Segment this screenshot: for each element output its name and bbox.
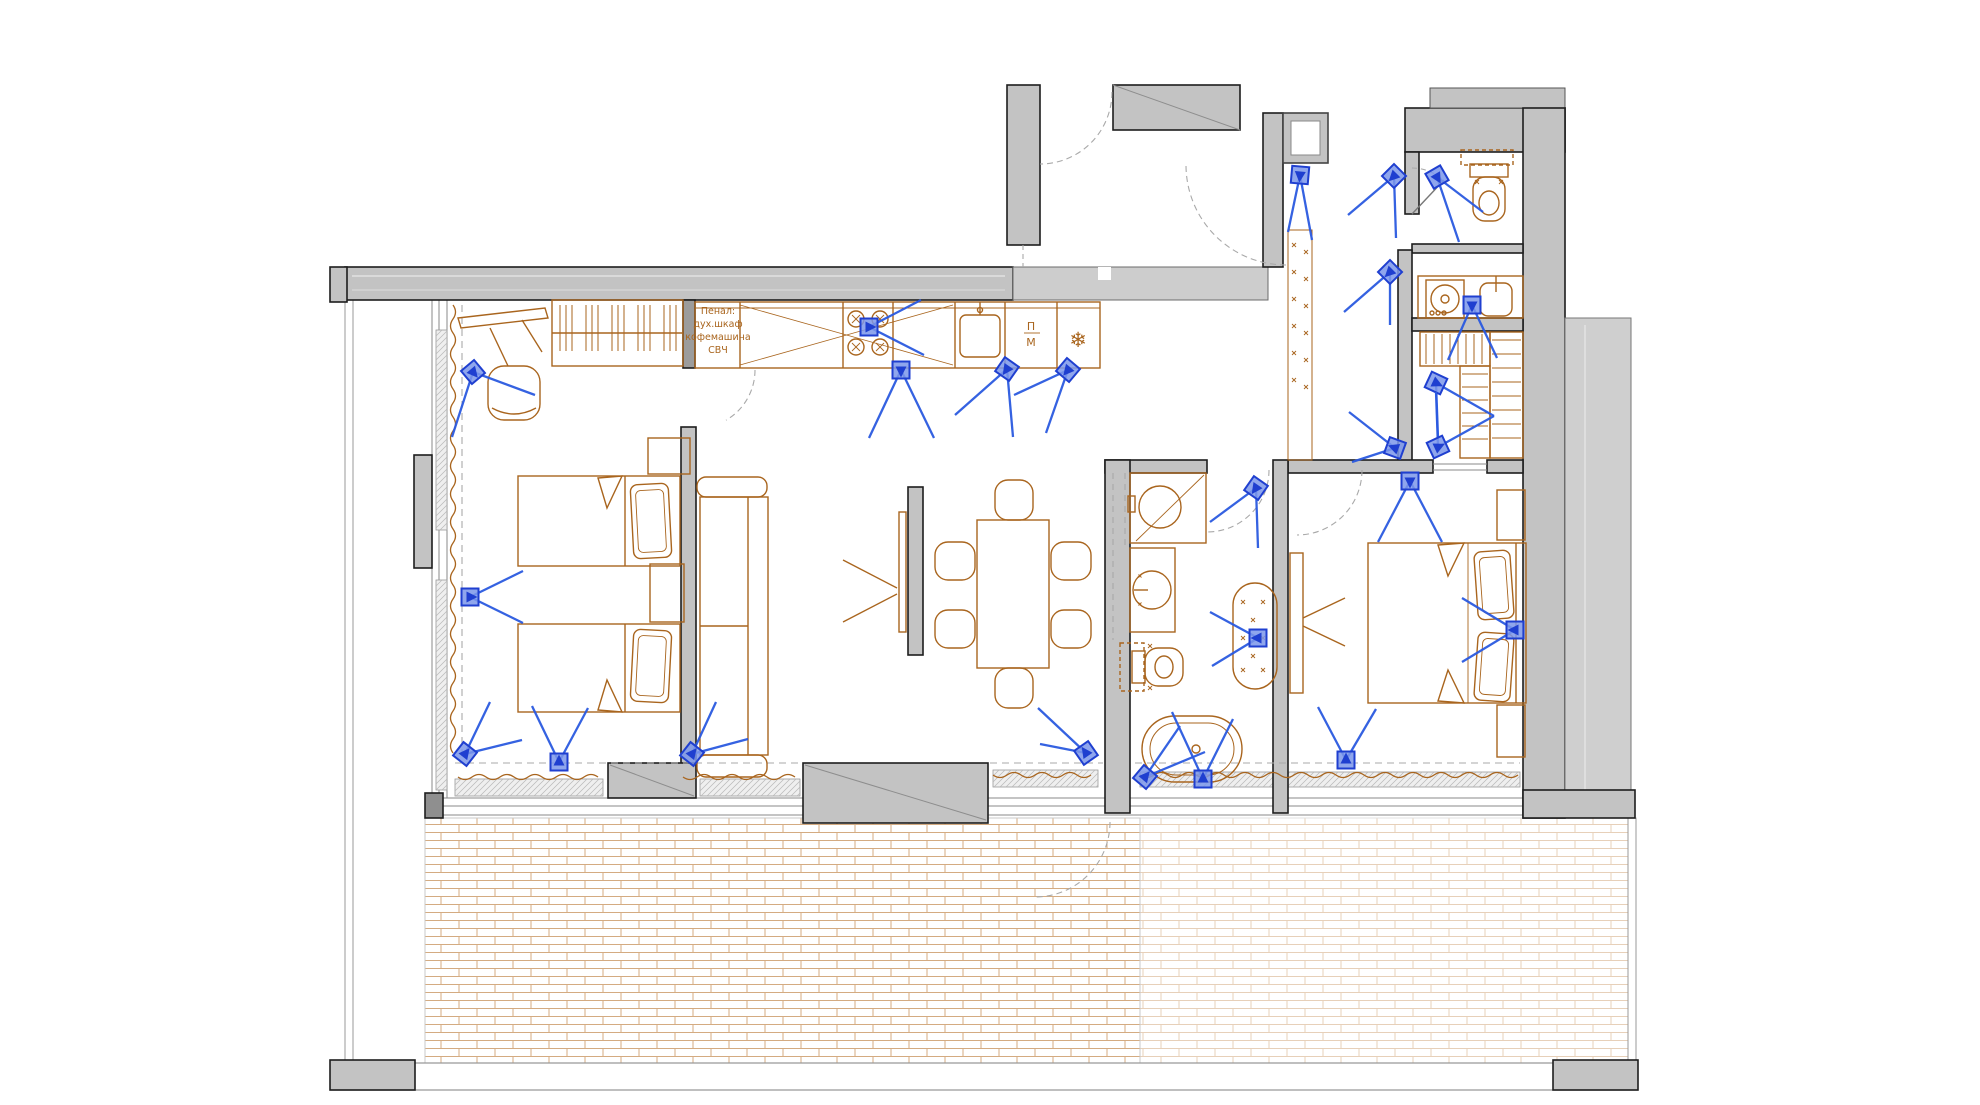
shower-diag xyxy=(1136,475,1204,541)
door-arc-bedroom xyxy=(1297,470,1362,535)
bedroom-tv-console xyxy=(1290,553,1303,693)
dining-chair xyxy=(995,480,1033,520)
washer-knob xyxy=(1430,311,1434,315)
balcony-brick-right xyxy=(1140,818,1630,1063)
tv-wall-panel xyxy=(908,487,923,655)
washer-drum xyxy=(1431,285,1459,313)
balcony-brick-left xyxy=(425,818,1140,1063)
camera-icon xyxy=(1427,436,1450,459)
camera-unit xyxy=(1378,473,1442,543)
door-arc-entrance xyxy=(1040,92,1112,164)
camera-unit xyxy=(869,362,934,439)
camera-icon xyxy=(1425,372,1448,395)
3 xyxy=(586,305,598,351)
camera-icon xyxy=(551,754,568,771)
toilet-seat xyxy=(1155,656,1173,678)
desk-chair-seat xyxy=(492,408,536,414)
wall-band-entry xyxy=(1013,267,1268,300)
dishwasher-label: П xyxy=(1027,320,1035,333)
camera-unit xyxy=(1348,164,1406,238)
pier-left xyxy=(414,455,432,568)
nightstand xyxy=(650,564,684,622)
blanket-fold xyxy=(598,680,622,712)
camera-unit xyxy=(532,706,588,771)
facade-line-left xyxy=(345,300,353,1063)
dishwasher-label: М xyxy=(1026,336,1036,349)
bed-single-2 xyxy=(518,624,680,712)
wall-bedroom-top-left xyxy=(1288,460,1433,473)
kitchen-cabinet-label: дух.шкаф xyxy=(693,319,742,330)
camera-unit xyxy=(1038,708,1098,765)
desk xyxy=(458,308,548,328)
camera-icon xyxy=(1402,473,1419,490)
washer-drum-inner xyxy=(1441,295,1449,303)
camera-unit xyxy=(955,357,1019,437)
camera-icon xyxy=(1195,771,1212,788)
tv-view-line xyxy=(1303,598,1345,618)
camera-fov-line xyxy=(901,370,934,438)
sill-hatch xyxy=(436,330,447,530)
pier-window-left xyxy=(425,793,443,818)
pier-balcony-right xyxy=(1553,1060,1638,1090)
dining-chair xyxy=(995,668,1033,708)
sill-hatch xyxy=(436,580,447,790)
kitchen-sink xyxy=(960,315,1000,357)
camera-icon xyxy=(1291,166,1309,184)
camera-icon xyxy=(1056,358,1080,382)
3 xyxy=(612,305,624,351)
closet-hanger-section xyxy=(1420,332,1490,366)
entry-rug-dots xyxy=(1292,243,1308,389)
curtain-left xyxy=(451,305,456,753)
kitchen-cabinet-label: СВЧ xyxy=(708,345,728,356)
kitchen-cabinet-label: кофемашина xyxy=(685,332,750,343)
shaft-box-inner xyxy=(1291,121,1320,155)
wall-top-main xyxy=(345,267,1013,300)
3 xyxy=(638,305,650,351)
sofa-armrest xyxy=(697,477,767,497)
camera-icon xyxy=(453,742,477,766)
camera-unit xyxy=(1210,476,1268,548)
camera-icon xyxy=(1250,630,1267,647)
wall-bedroom-top-right xyxy=(1487,460,1523,473)
camera-unit xyxy=(1288,166,1312,240)
camera-unit xyxy=(1014,358,1080,433)
wall-right-outer xyxy=(1523,108,1565,818)
entry-rug xyxy=(1288,230,1312,460)
closet-shelves-right xyxy=(1490,332,1523,458)
camera-unit xyxy=(452,360,535,437)
dining-chair xyxy=(1051,610,1091,648)
sill-hatch xyxy=(455,779,603,796)
3 xyxy=(560,305,572,351)
toilet-tank xyxy=(1132,651,1145,683)
camera-icon xyxy=(461,360,485,384)
wc-marks xyxy=(1475,180,1503,184)
nightstand xyxy=(1497,490,1525,540)
camera-icon xyxy=(462,589,479,606)
dining-chair xyxy=(935,610,975,648)
pier-top-left xyxy=(330,267,347,302)
desk-leg xyxy=(522,320,542,352)
pillow xyxy=(630,629,672,703)
tv-screen xyxy=(899,512,906,632)
wall-wc-bottom xyxy=(1412,244,1523,253)
camera-fov-line xyxy=(1438,416,1494,447)
facade-line-right xyxy=(1628,818,1636,1063)
3 xyxy=(664,305,676,351)
pillow-inner xyxy=(635,489,666,552)
kitchen-cabinet-label: Пенал: xyxy=(701,306,735,317)
desk-leg xyxy=(490,328,508,366)
camera-unit xyxy=(1210,612,1267,666)
camera-unit xyxy=(1318,707,1376,769)
bathtub-drain xyxy=(1192,745,1200,753)
pier-balcony-left xyxy=(330,1060,415,1090)
wall-bath-left xyxy=(1105,460,1130,813)
wall-utility-bottom xyxy=(1412,318,1523,331)
camera-icon xyxy=(1507,622,1524,639)
camera-icon xyxy=(1464,297,1481,314)
camera-unit xyxy=(462,571,524,623)
pillow xyxy=(630,483,672,559)
pillow-inner xyxy=(1479,638,1509,696)
sill-hatch xyxy=(700,779,800,796)
door-arc-kids xyxy=(726,370,755,420)
camera-fov-line xyxy=(869,370,901,438)
wall-notch xyxy=(1098,267,1111,280)
blanket-fold xyxy=(1438,543,1464,576)
sofa-armrest xyxy=(697,755,767,777)
camera-fov-line xyxy=(955,369,1007,415)
dining-chair xyxy=(935,542,975,580)
fridge-icon: ❄ xyxy=(1069,328,1087,352)
wall-right-wide xyxy=(1565,318,1631,795)
pillow-inner xyxy=(635,635,666,696)
dining-chair xyxy=(1051,542,1091,580)
wall-bath-right xyxy=(1273,460,1288,813)
floorplan-svg: Пенал:дух.шкафкофемашинаСВЧПМ❄ xyxy=(0,0,1980,1105)
shower-drain xyxy=(1139,486,1181,528)
wall-utility-left xyxy=(1398,250,1412,462)
camera-icon xyxy=(1338,752,1355,769)
dining-table xyxy=(977,520,1049,668)
tv-view-line xyxy=(1303,626,1345,646)
sill-hatch-box xyxy=(455,779,603,796)
camera-unit xyxy=(453,702,522,766)
wc-toilet-tank xyxy=(1470,164,1508,177)
camera-icon xyxy=(1244,476,1268,500)
camera-icon xyxy=(861,319,878,336)
washer-knob xyxy=(1436,311,1440,315)
wall-wc-top-band xyxy=(1430,88,1565,108)
wall-wc-left xyxy=(1405,152,1419,214)
wall-bottom-right-block xyxy=(1523,790,1635,818)
tv-view-line xyxy=(843,560,897,588)
camera-icon xyxy=(893,362,910,379)
camera-icon xyxy=(1425,165,1448,188)
balcony-and-windows-layer xyxy=(330,300,1638,1090)
blanket-fold xyxy=(598,476,622,508)
wall-kids-partition xyxy=(681,427,696,767)
wall-niche-vert xyxy=(1263,113,1283,267)
pillow-inner xyxy=(1479,556,1509,614)
floorplan-canvas: Пенал:дух.шкафкофемашинаСВЧПМ❄ xyxy=(0,0,1980,1105)
tv-view-line xyxy=(843,594,897,622)
blanket-fold xyxy=(1438,670,1464,703)
wall-entry-shaft xyxy=(1007,85,1040,245)
toilet-bowl xyxy=(1145,648,1183,686)
camera-fov-line xyxy=(1038,708,1086,753)
camera-unit xyxy=(1344,260,1402,325)
nightstand xyxy=(1497,705,1525,757)
